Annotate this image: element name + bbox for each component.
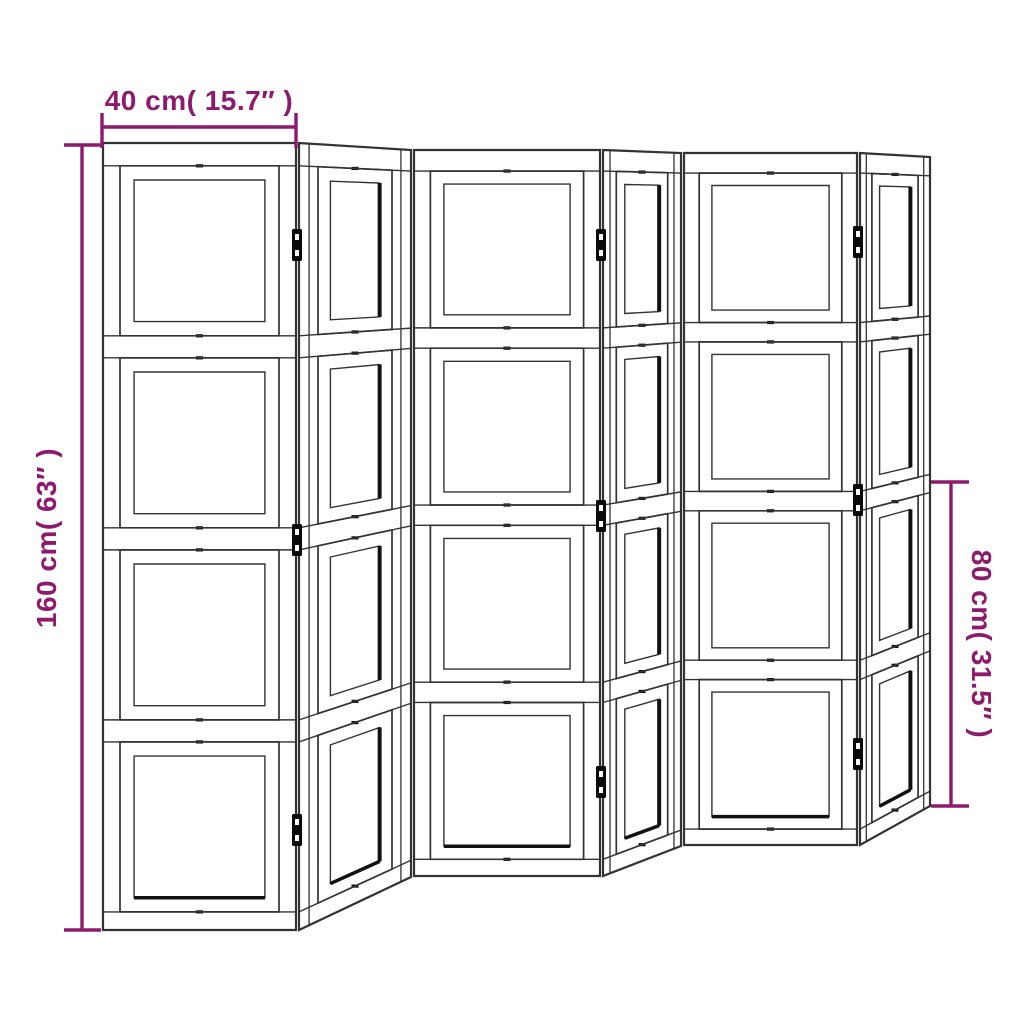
hinge (292, 229, 302, 261)
room-divider-diagram-svg: 40 cm( 15.7″ ) 160 cm( 63″ ) 80 cm( 31.5… (0, 0, 1024, 1024)
hinge (596, 229, 606, 261)
hinge (853, 738, 863, 770)
drawing-root (64, 113, 969, 930)
panel-3 (414, 150, 600, 876)
panel-1 (103, 143, 296, 930)
panel-4 (603, 150, 681, 876)
panel-5 (684, 153, 857, 845)
hinge (292, 814, 302, 846)
height-dimension-label: 160 cm( 63″ ) (31, 448, 62, 628)
hinge (596, 500, 606, 532)
half-height-dimension-label: 80 cm( 31.5″ ) (966, 550, 997, 739)
product-diagram: 40 cm( 15.7″ ) 160 cm( 63″ ) 80 cm( 31.5… (0, 0, 1024, 1024)
panel-6 (860, 153, 930, 845)
hinge (853, 226, 863, 258)
hinge (292, 524, 302, 556)
height-dimension (64, 145, 101, 930)
panel-2 (299, 143, 411, 930)
half_height-dimension (931, 482, 969, 806)
width-dimension-label: 40 cm( 15.7″ ) (105, 85, 294, 116)
hinge (853, 484, 863, 516)
hinge (596, 766, 606, 798)
